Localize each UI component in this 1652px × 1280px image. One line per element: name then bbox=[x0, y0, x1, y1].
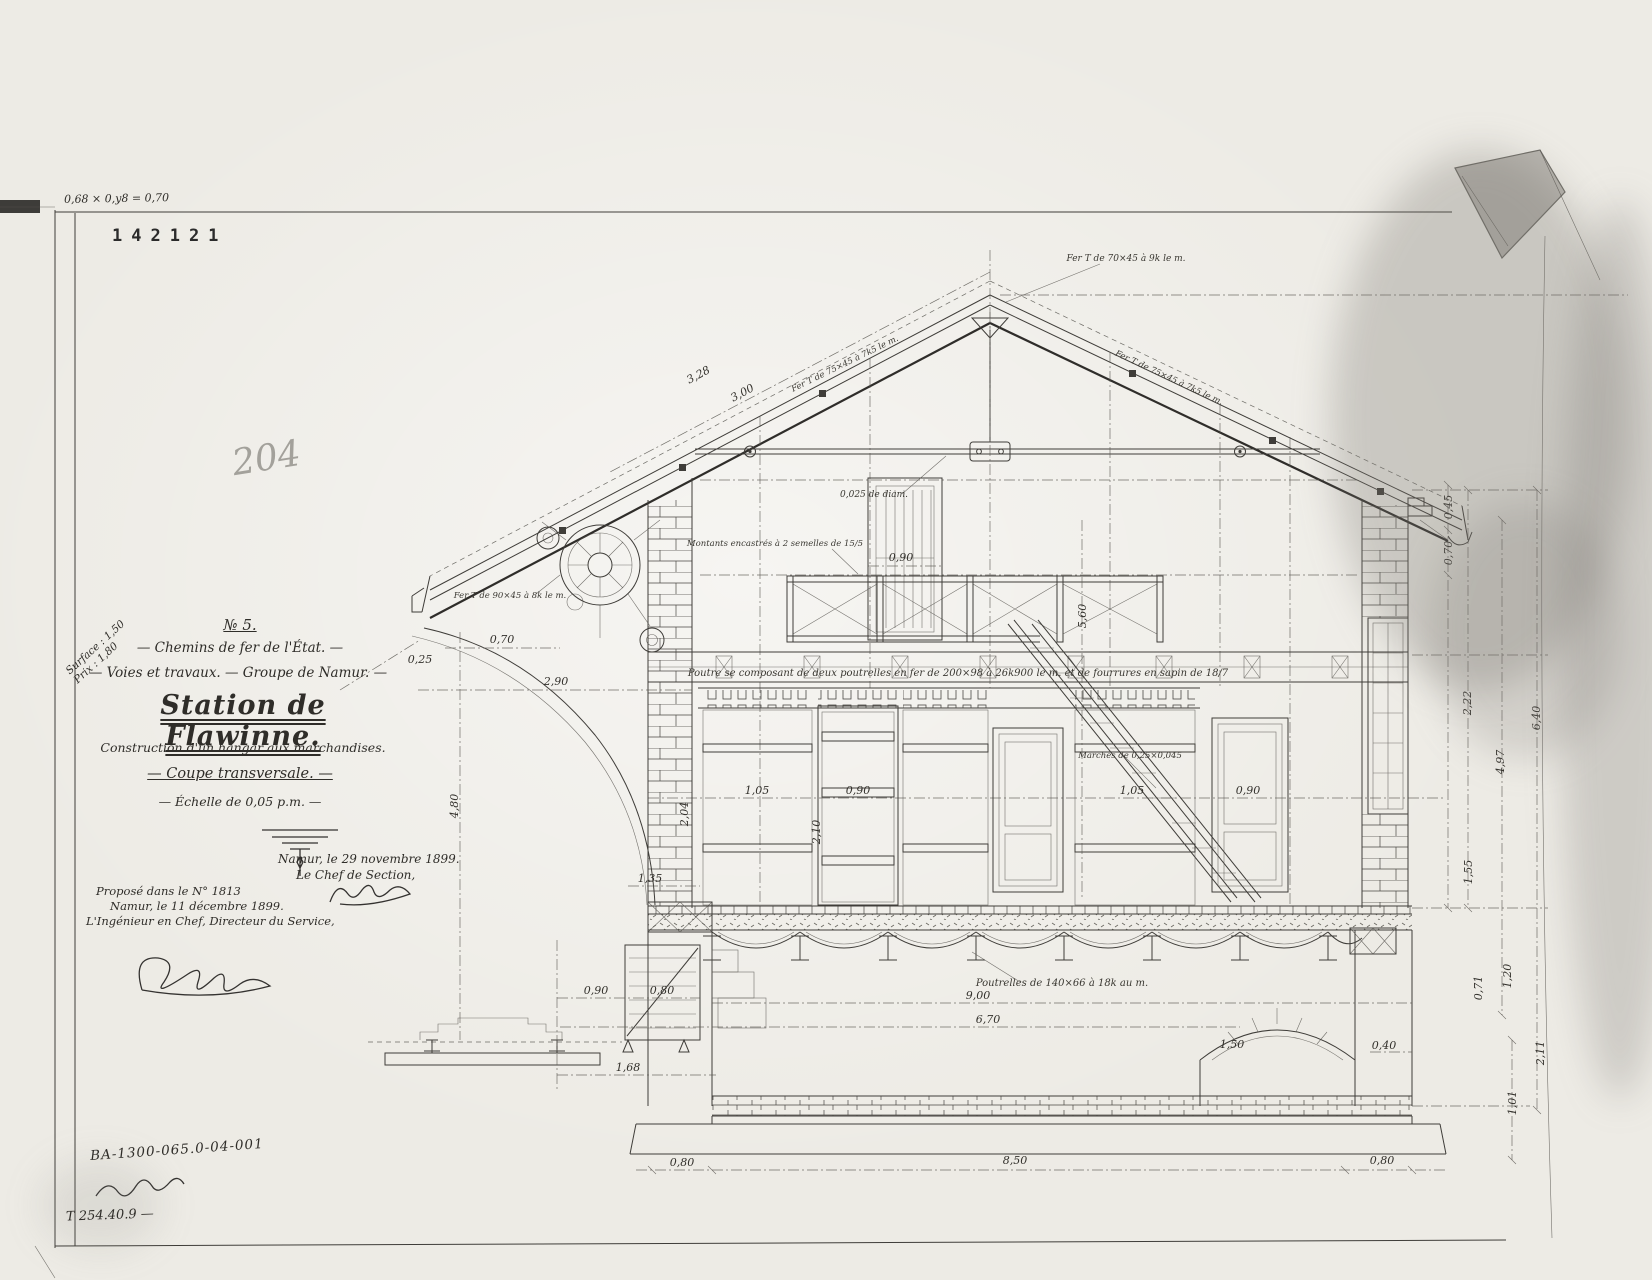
dimension-label: 0,80 bbox=[1370, 1154, 1395, 1167]
dimension-label: 0,80 bbox=[650, 984, 675, 997]
dimension-labels: 0,808,500,809,006,701,680,900,801,351,50… bbox=[408, 363, 1547, 1169]
dimension-label: 2,90 bbox=[543, 675, 569, 688]
dimension-label: 4,80 bbox=[448, 794, 461, 820]
construction-note: 0,025 de diam. bbox=[840, 490, 908, 500]
dimension-label: 5,60 bbox=[1076, 604, 1089, 629]
engineer-signature bbox=[139, 958, 270, 995]
administration-line: — Chemins de fer de l'État. — bbox=[105, 640, 375, 656]
dimension-label: 0,90 bbox=[846, 784, 871, 797]
approval-role-left: L'Ingénieur en Chef, Directeur du Servic… bbox=[86, 914, 335, 928]
clerk-scribble bbox=[96, 1178, 184, 1196]
dimension-label: 0,25 bbox=[408, 653, 433, 666]
dimension-label: 2,10 bbox=[810, 820, 823, 846]
right-wall-window bbox=[1368, 618, 1408, 814]
approval-place-date-left: Namur, le 11 décembre 1899. bbox=[110, 899, 284, 913]
dimension-label: 2,22 bbox=[1461, 691, 1474, 717]
rail-track-section bbox=[368, 940, 622, 1090]
construction-note: Montants encastrés à 2 semelles de 15/5 bbox=[686, 538, 863, 549]
dimension-label: 1,01 bbox=[1506, 1091, 1519, 1116]
corner-formula-note: 0,68 × 0,y8 = 0,70 bbox=[64, 191, 169, 206]
dimension-label: 9,00 bbox=[966, 989, 991, 1002]
dimension-label: 0,70 bbox=[490, 633, 515, 646]
drawing-subtitle: Construction d'un hangar aux marchandise… bbox=[84, 740, 402, 755]
dimension-label: 1,50 bbox=[1220, 1038, 1245, 1051]
dimension-label: 2,11 bbox=[1534, 1041, 1547, 1067]
dimension-label: 0,90 bbox=[584, 984, 609, 997]
dimension-label: 1,35 bbox=[638, 872, 663, 885]
staircase bbox=[1008, 620, 1261, 902]
view-name: — Coupe transversale. — bbox=[120, 766, 360, 782]
tie-rod bbox=[695, 318, 1320, 461]
dimension-label: 0,71 bbox=[1472, 976, 1485, 1001]
dimension-label: 3,28 bbox=[684, 363, 712, 386]
archive-code: T 254.40.9 — bbox=[66, 1206, 154, 1224]
dimension-label: 3,00 bbox=[728, 381, 756, 404]
interior-door-left bbox=[993, 728, 1063, 892]
dimension-label: 1,05 bbox=[745, 784, 770, 797]
sliding-door bbox=[818, 706, 898, 905]
section-chief-signature bbox=[330, 885, 410, 904]
scanned-drawing-sheet: 0,808,500,809,006,701,680,900,801,351,50… bbox=[0, 0, 1652, 1280]
basement bbox=[630, 928, 1446, 1154]
inventory-number-stamp: 142121 bbox=[112, 226, 227, 246]
construction-note: Marches de 0,25×0,045 bbox=[1077, 751, 1182, 761]
balcony-railing bbox=[787, 576, 1163, 642]
approval-register-note: Proposé dans le N° 1813 bbox=[96, 884, 241, 898]
dimension-label: 1,05 bbox=[1120, 784, 1145, 797]
department-line: — Voies et travaux. — Groupe de Namur. — bbox=[88, 665, 388, 681]
dimension-label: 8,50 bbox=[1003, 1154, 1028, 1167]
dimension-label: 1,20 bbox=[1501, 964, 1514, 989]
construction-note: Fer T de 75×45 à 7k5 le m. bbox=[1112, 347, 1224, 407]
dimension-label: 0,45 bbox=[1442, 495, 1455, 520]
dimension-label: 2,04 bbox=[678, 802, 691, 828]
drawing-number: № 5. bbox=[150, 616, 330, 634]
interior-door-right bbox=[1212, 718, 1288, 892]
dimension-label: 1,55 bbox=[1462, 860, 1475, 885]
dimension-label: 1,68 bbox=[616, 1061, 641, 1074]
dimension-lines bbox=[340, 264, 1548, 1174]
approval-place-date-right: Namur, le 29 novembre 1899. bbox=[278, 852, 460, 866]
framing-grid bbox=[648, 312, 1445, 905]
dimension-label: 6,40 bbox=[1530, 706, 1543, 731]
construction-note: Fer T de 70×45 à 9k le m. bbox=[1065, 253, 1185, 264]
dimension-label: 0,40 bbox=[1372, 1039, 1397, 1052]
canopy-bracket bbox=[412, 520, 664, 905]
right-wall bbox=[1362, 500, 1408, 908]
construction-note: Poutre se composant de deux poutrelles e… bbox=[687, 668, 1229, 679]
approval-role-right: Le Chef de Section, bbox=[296, 868, 415, 882]
dimension-label: 6,70 bbox=[976, 1013, 1001, 1026]
dimension-label: 4,97 bbox=[1494, 750, 1507, 776]
scale-note: — Échelle de 0,05 p.m. — bbox=[130, 794, 350, 809]
dimension-label: 0,90 bbox=[889, 551, 914, 564]
construction-note: Poutrelles de 140×66 à 18k au m. bbox=[975, 978, 1148, 989]
dock-steps bbox=[623, 945, 700, 1052]
dimension-label: 0,70 bbox=[1442, 541, 1455, 566]
dimension-label: 0,90 bbox=[1236, 784, 1261, 797]
left-wall bbox=[648, 478, 692, 908]
construction-note: Fer T de 75×45 à 7k5 le m. bbox=[789, 333, 901, 395]
dimension-label: 0,80 bbox=[670, 1156, 695, 1169]
jack-arch-floor bbox=[648, 902, 1412, 960]
construction-note: Fer T de 90×45 à 8k le m. bbox=[453, 590, 566, 601]
